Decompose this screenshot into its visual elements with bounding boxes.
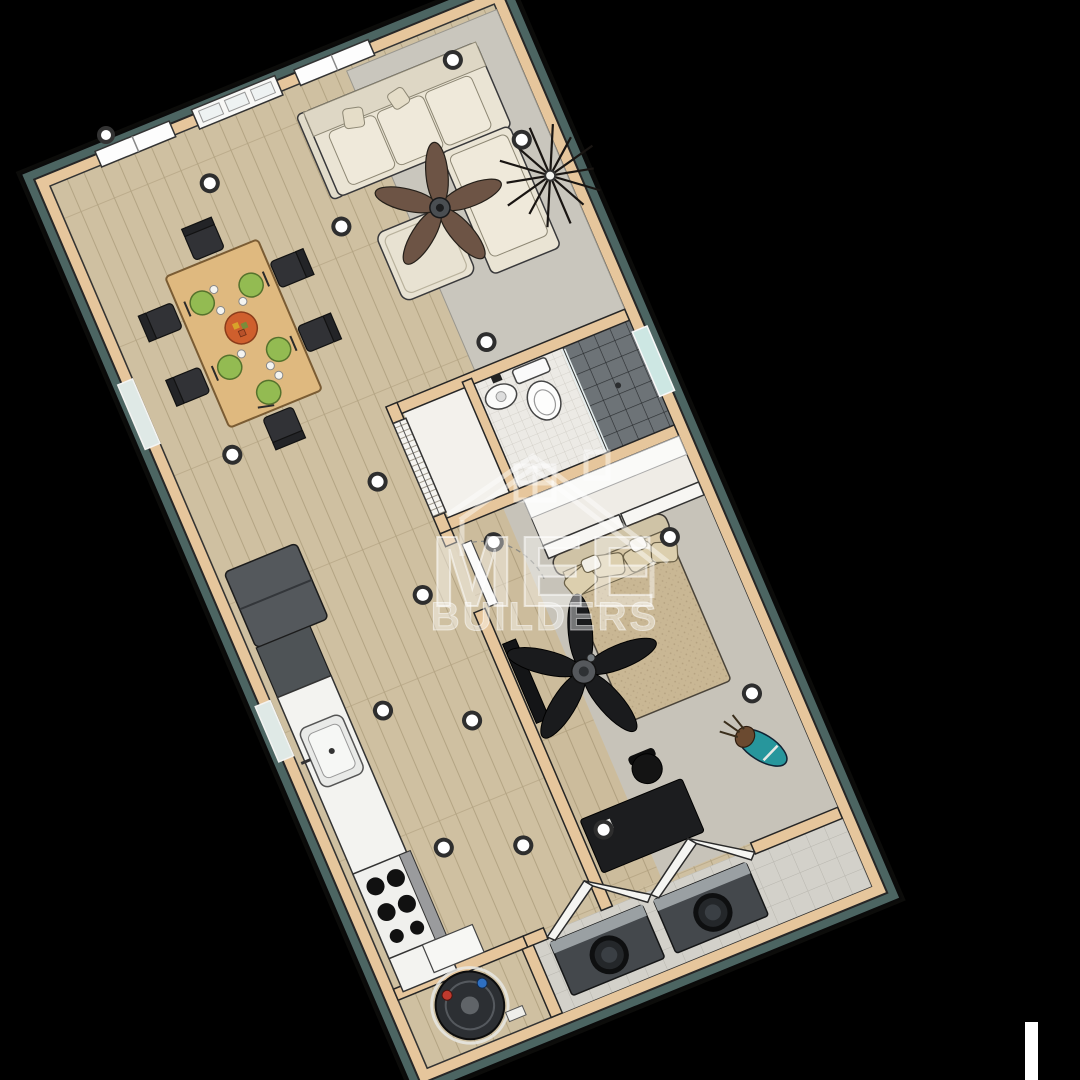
watermark-subtitle-text: BUILDERS — [431, 595, 659, 639]
floorplan-render-stage: MEE BUILDERS — [0, 0, 1080, 1080]
floorplan-scene: MEE BUILDERS — [0, 0, 1080, 1080]
white-artifact-bar — [1025, 1022, 1038, 1080]
recessed-light — [99, 128, 113, 142]
throw-pillow — [342, 107, 365, 130]
